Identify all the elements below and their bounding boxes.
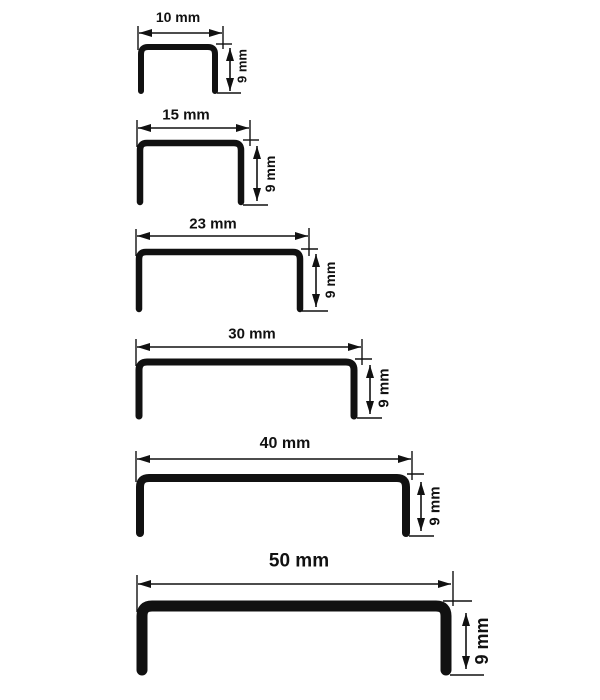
width-label-15mm: 15 mm <box>162 108 210 123</box>
height-label-23mm: 9 mm <box>323 262 337 299</box>
profile-drawing-40mm <box>136 451 434 536</box>
height-label-10mm: 9 mm <box>236 49 249 83</box>
height-label-40mm: 9 mm <box>428 486 443 525</box>
u-channel-40mm <box>140 478 406 533</box>
u-channel-50mm <box>142 606 446 670</box>
profile-drawing-10mm <box>138 26 241 93</box>
profile-drawing-30mm <box>136 339 382 418</box>
profiles-drawing <box>0 0 600 700</box>
profile-drawing-23mm <box>136 228 328 311</box>
width-label-10mm: 10 mm <box>156 10 200 24</box>
height-label-15mm: 9 mm <box>263 156 277 193</box>
width-label-23mm: 23 mm <box>189 217 237 232</box>
width-label-40mm: 40 mm <box>260 436 311 452</box>
u-channel-23mm <box>139 252 300 309</box>
u-channel-15mm <box>140 143 241 202</box>
height-label-50mm: 9 mm <box>473 617 491 664</box>
diagram-canvas: 10 mm 9 mm 15 mm 9 mm 23 mm 9 mm 30 mm 9… <box>0 0 600 700</box>
profile-drawing-50mm <box>137 571 484 675</box>
u-channel-30mm <box>139 362 354 416</box>
u-channel-10mm <box>141 47 215 91</box>
height-label-30mm: 9 mm <box>377 368 392 407</box>
width-label-50mm: 50 mm <box>269 552 329 571</box>
profile-drawing-15mm <box>137 120 268 205</box>
width-label-30mm: 30 mm <box>228 327 276 342</box>
